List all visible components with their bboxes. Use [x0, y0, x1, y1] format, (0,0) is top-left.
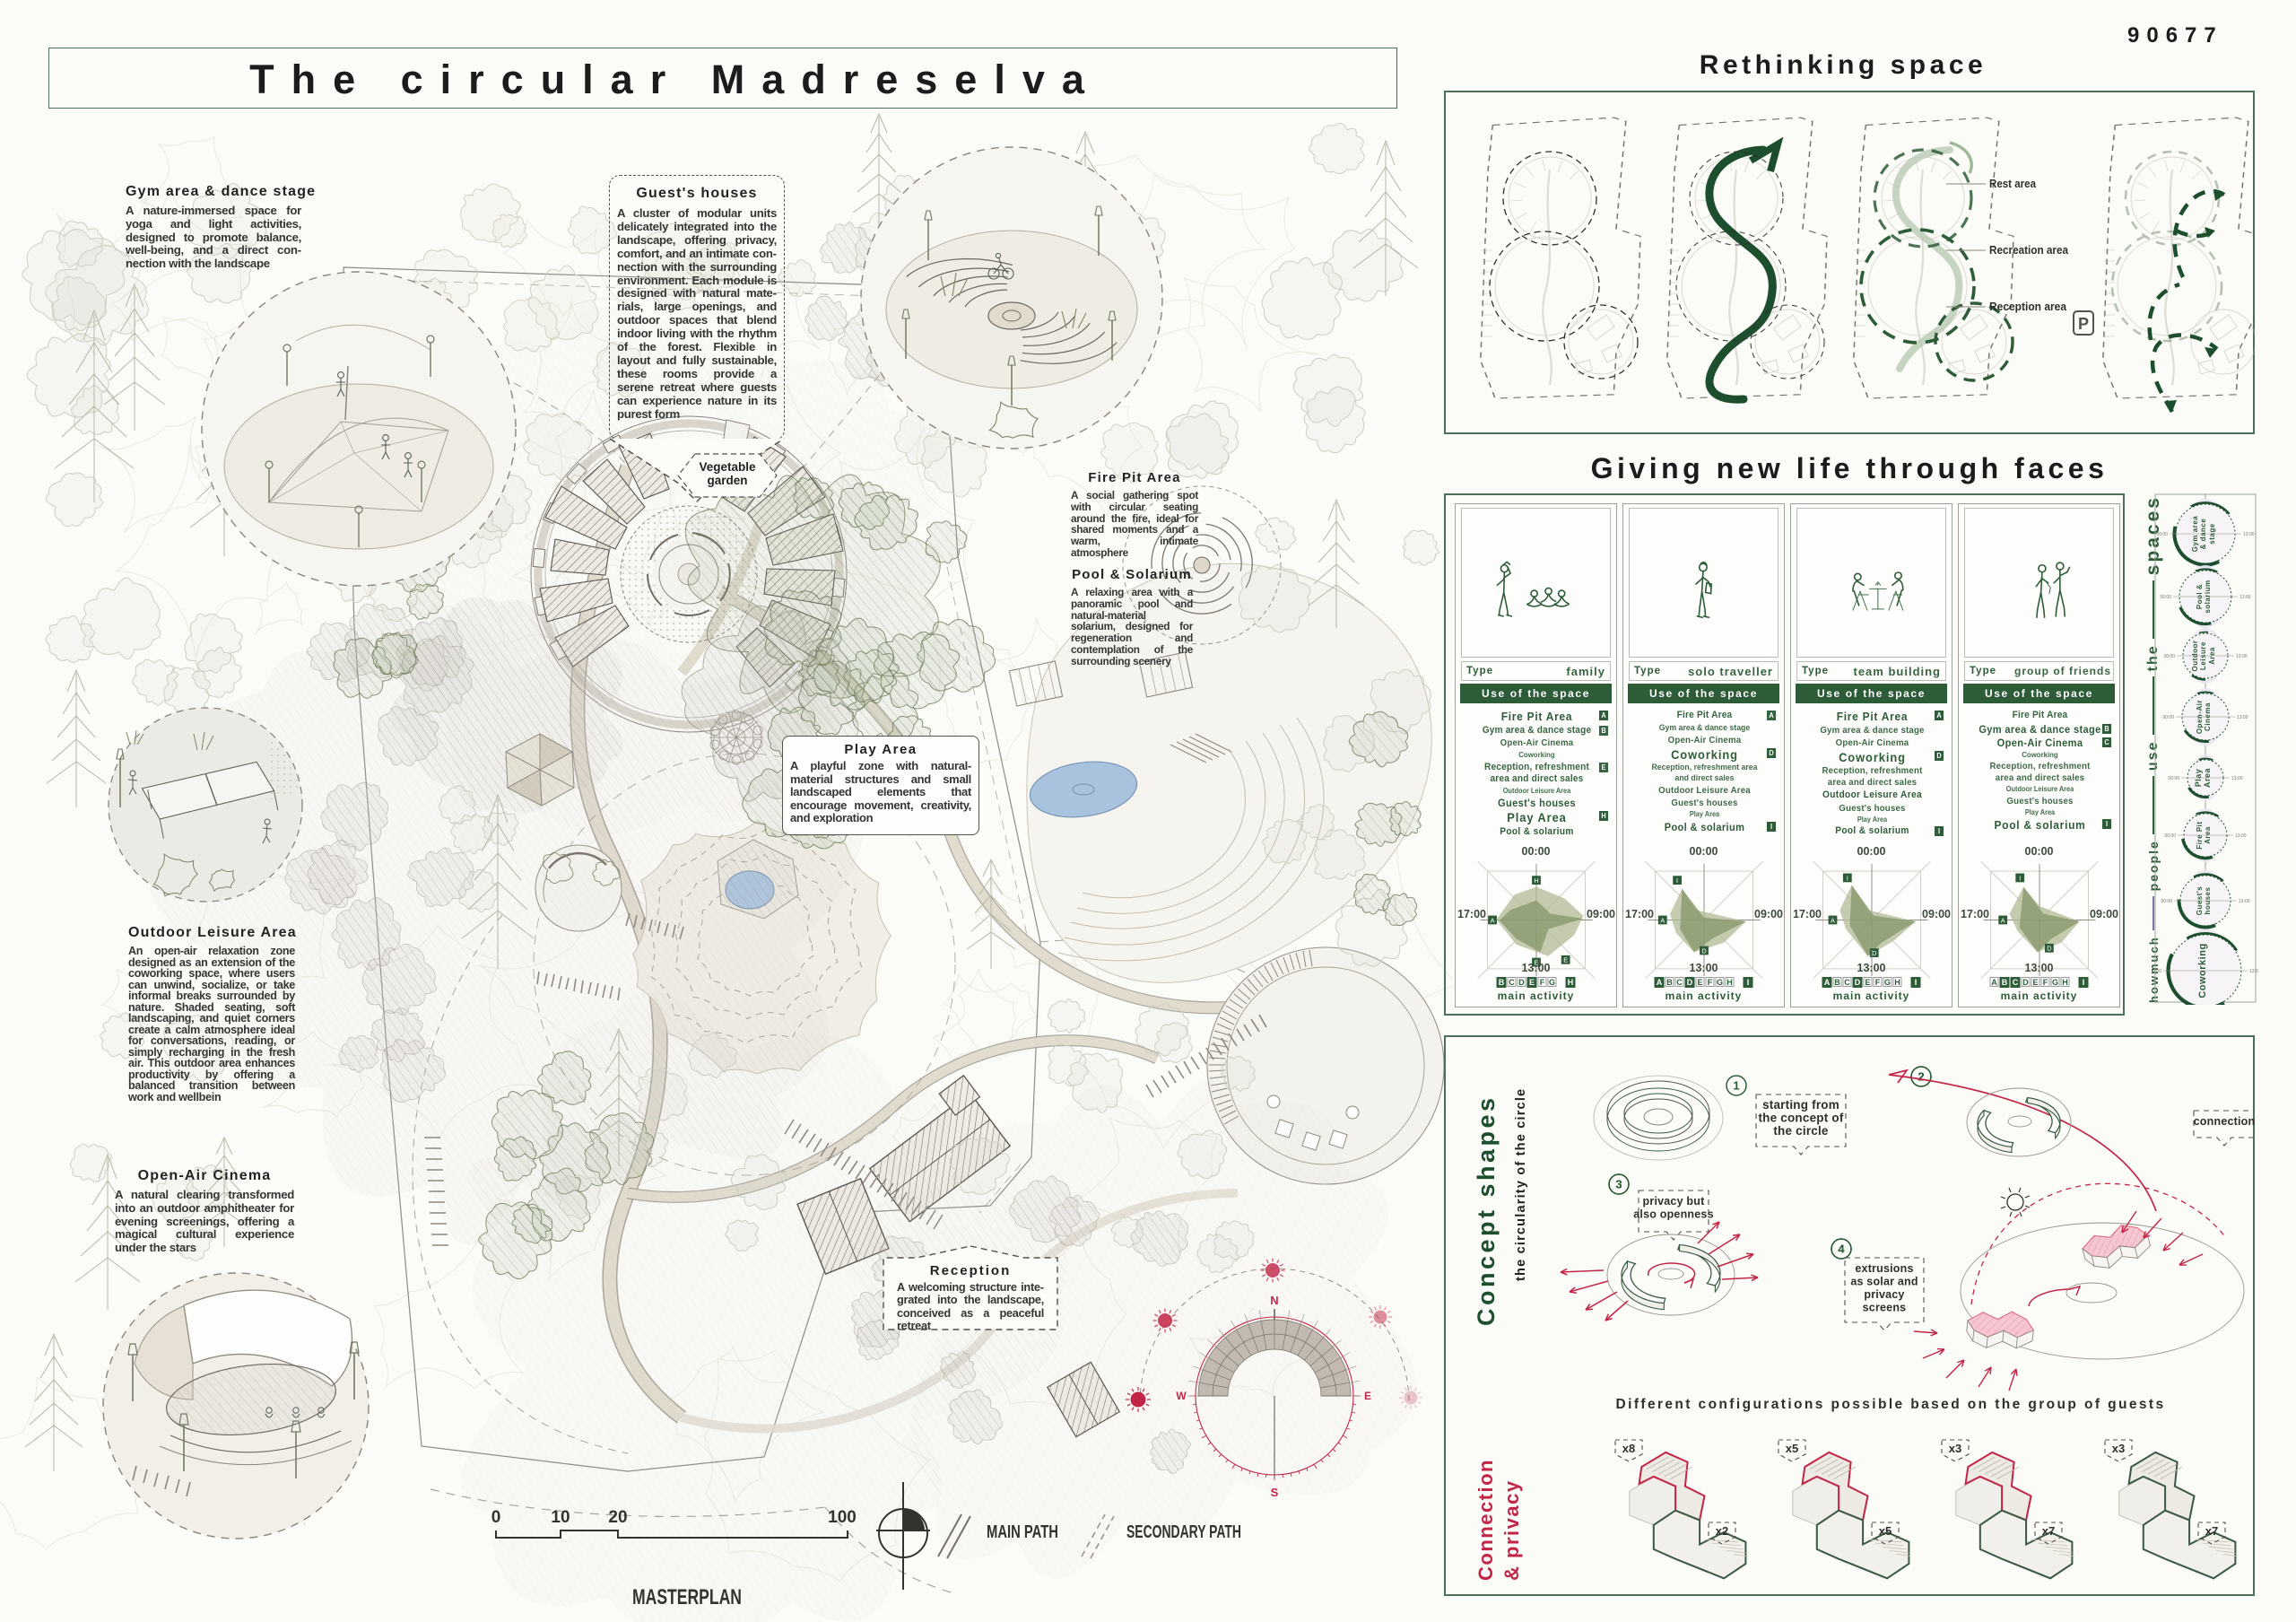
svg-text:20: 20: [608, 1508, 627, 1527]
svg-text:x2: x2: [1716, 1524, 1728, 1538]
svg-text:Area: Area: [2203, 768, 2212, 789]
svg-text:& dance: & dance: [2199, 519, 2207, 550]
svg-text:Open-Air: Open-Air: [2196, 700, 2204, 734]
svg-text:13:00: 13:00: [2243, 532, 2255, 537]
svg-text:Guest's: Guest's: [2196, 886, 2204, 916]
svg-text:E: E: [1364, 1390, 1371, 1402]
svg-text:A: A: [2001, 916, 2005, 924]
svg-text:extrusions: extrusions: [1855, 1262, 1913, 1275]
svg-text:as solar and: as solar and: [1850, 1276, 1918, 1288]
svg-text:MASTERPLAN: MASTERPLAN: [632, 1585, 742, 1609]
svg-text:00:00: 00:00: [2164, 833, 2176, 839]
svg-text:screens: screens: [1863, 1302, 1907, 1314]
svg-text:E: E: [1563, 956, 1568, 964]
svg-text:Leisure: Leisure: [2199, 641, 2207, 670]
svg-text:100: 100: [828, 1508, 857, 1527]
svg-text:13:00: 13:00: [2231, 776, 2243, 781]
svg-text:00:00: 00:00: [2160, 595, 2171, 600]
svg-text:0: 0: [491, 1508, 501, 1527]
svg-text:00:00: 00:00: [2161, 899, 2172, 904]
svg-text:P: P: [2078, 315, 2089, 333]
svg-text:13:00: 13:00: [2235, 833, 2247, 839]
svg-text:Coworking: Coworking: [2197, 943, 2208, 998]
svg-text:I: I: [1676, 876, 1678, 885]
svg-text:x7: x7: [2042, 1524, 2055, 1538]
svg-text:4: 4: [1838, 1243, 1845, 1256]
svg-text:D: D: [1872, 949, 1876, 957]
svg-text:00:00: 00:00: [2168, 776, 2179, 781]
svg-text:Gym area: Gym area: [2191, 516, 2199, 553]
svg-text:the concept of: the concept of: [1758, 1112, 1843, 1125]
svg-text:Outdoor: Outdoor: [2191, 640, 2199, 671]
svg-text:A: A: [1831, 916, 1835, 924]
svg-text:H: H: [1534, 876, 1538, 885]
svg-text:Reception area: Reception area: [1989, 301, 2067, 313]
svg-text:x3: x3: [1949, 1442, 1961, 1455]
svg-text:houses: houses: [2204, 886, 2212, 914]
svg-text:13:00: 13:00: [2239, 595, 2251, 600]
svg-text:13:00: 13:00: [2249, 969, 2258, 974]
svg-text:privacy: privacy: [1864, 1288, 1904, 1301]
svg-text:W: W: [1176, 1390, 1187, 1402]
svg-text:Area: Area: [2204, 826, 2212, 844]
svg-text:Play: Play: [2194, 769, 2203, 788]
svg-text:starting from: starting from: [1762, 1098, 1839, 1112]
svg-text:Different configurations possi: Different configurations possible based …: [1616, 1397, 2166, 1412]
svg-text:13:00: 13:00: [2239, 899, 2250, 904]
svg-text:3: 3: [1615, 1178, 1622, 1191]
svg-text:the circle: the circle: [1773, 1124, 1829, 1138]
svg-text:2: 2: [1918, 1070, 1924, 1084]
svg-text:S: S: [1271, 1486, 1279, 1499]
svg-text:N: N: [1270, 1294, 1278, 1307]
svg-text:A: A: [1491, 916, 1495, 924]
svg-text:also openness: also openness: [1633, 1208, 1713, 1221]
svg-text:privacy but: privacy but: [1643, 1195, 1706, 1208]
svg-text:x8: x8: [1622, 1442, 1635, 1455]
svg-text:Recreation area: Recreation area: [1989, 244, 2069, 257]
svg-text:13:00: 13:00: [2237, 715, 2248, 720]
svg-text:10: 10: [551, 1508, 570, 1527]
svg-text:stage: stage: [2208, 523, 2216, 544]
svg-text:00:00: 00:00: [2162, 715, 2174, 720]
svg-text:00:00: 00:00: [2154, 969, 2161, 974]
svg-text:solarium: solarium: [2204, 580, 2212, 613]
svg-text:connection: connection: [2194, 1115, 2255, 1128]
svg-text:13:00: 13:00: [2236, 654, 2248, 659]
svg-text:Fire Pit: Fire Pit: [2196, 821, 2204, 849]
svg-text:x3: x3: [2112, 1442, 2125, 1455]
svg-text:MAIN PATH: MAIN PATH: [987, 1522, 1058, 1542]
svg-text:A: A: [1660, 916, 1665, 924]
svg-text:Rest area: Rest area: [1989, 178, 2037, 190]
svg-text:D: D: [2047, 945, 2051, 953]
svg-text:1: 1: [1733, 1079, 1739, 1093]
svg-text:x5: x5: [1879, 1524, 1892, 1538]
svg-text:Area: Area: [2208, 647, 2216, 665]
svg-text:x5: x5: [1786, 1442, 1798, 1455]
svg-text:I: I: [2019, 874, 2021, 882]
svg-text:00:00: 00:00: [2163, 654, 2175, 659]
svg-text:Cinema: Cinema: [2204, 702, 2212, 731]
svg-text:I: I: [1847, 874, 1848, 882]
svg-text:SECONDARY PATH: SECONDARY PATH: [1126, 1522, 1241, 1542]
svg-text:x7: x7: [2205, 1524, 2218, 1538]
svg-text:00:00: 00:00: [2156, 532, 2168, 537]
svg-text:Pool &: Pool &: [2196, 584, 2204, 609]
